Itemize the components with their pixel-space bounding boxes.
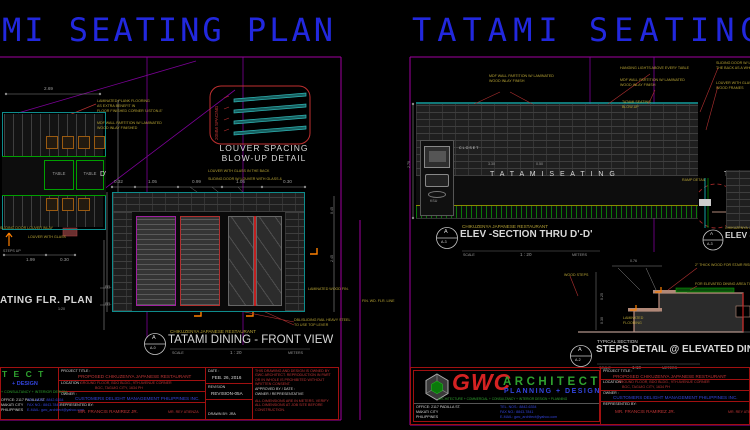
elev-annotation-blowup: BLOW-UP (622, 105, 639, 109)
steps-annotation-wood: 2" THICK WOOD FOR STAIR RISE & TREAD (695, 263, 750, 267)
plan-annotation-wall: MDF WALL PARTITION W/ LAMINATED (97, 121, 162, 125)
front-view-title: TATAMI DINING - FRONT VIEW (168, 334, 333, 347)
corner-detail-wall (726, 170, 750, 228)
equipment-screen (429, 151, 446, 162)
corner-title: ELEV -SECTION (725, 231, 750, 241)
represented-by-value-2: MR. REY ATIENZA (728, 410, 750, 414)
louver-detail-title: BLOW-UP DETAIL (212, 154, 316, 164)
front-glass-panel-1 (228, 216, 254, 306)
front-annotation-rail: TO USE TOP LEVER (294, 323, 328, 327)
sheet-title-right: TATAMI SEATING (412, 12, 750, 49)
logo-divider (414, 403, 599, 404)
owner-value: CUSTOMERS DELIGHT MANAGEMENT PHILIPPINES… (75, 396, 200, 401)
corner-annotation: RAMP DETAIL (682, 178, 706, 182)
logo-address: MAKATI CITY (1, 403, 23, 407)
table-label: TABLE (45, 172, 73, 177)
logo-tagline-tail: + DESIGN (12, 381, 38, 387)
front-wall-right (285, 212, 304, 311)
titleblock-row-line (205, 383, 252, 384)
ksu-label: KSU (430, 199, 437, 203)
steps-title: STEPS DETAIL @ ELEVATED DINING AR (596, 344, 750, 356)
scale-label: SCALE (172, 351, 184, 355)
location-value: GROUND FLOOR, BDO BLDG., 9TH AVENUE CORN… (618, 380, 710, 384)
viewport-marker-number: A-3 (707, 242, 713, 246)
front-wall-left (113, 212, 132, 311)
elev-title: ELEV -SECTION THRU D'-D' (460, 229, 593, 241)
front-dim: 0.99 (192, 179, 201, 184)
logo-services: ARCHITECTURE + COMMERCIAL + CONSULTANCY … (438, 398, 567, 402)
front-annotation-rail: DBL/SLIDING RAIL HEAVY STEEL (294, 318, 350, 322)
front-dim: 1.05 (236, 179, 245, 184)
titleblock-row-line (58, 391, 205, 392)
plan-scale: 1:20 (58, 307, 65, 311)
steps-annotation-riser: WOOD STEPS (564, 273, 588, 277)
logo-address: MAKATI CITY (416, 410, 438, 414)
represented-by-value-2: MR. REY ATIENZA (168, 410, 199, 414)
viewport-marker-letter: A (578, 347, 582, 353)
plan-view-title: ATING FLR. PLAN (0, 295, 93, 307)
titleblock-divider (205, 367, 206, 420)
front-panel-divider (254, 216, 256, 306)
elev-annotation-lights: HANGING LIGHTS ABOVE EVERY TABLE (620, 66, 689, 70)
logo-address: PHILIPPINES (416, 415, 438, 419)
plan-table-1: TABLE (44, 160, 74, 190)
scale-label: SCALE (463, 253, 475, 257)
elev-annotation-slide: THE BACK AS A WHOLE (716, 66, 750, 70)
elev-dim: 0.50 (536, 162, 543, 166)
steps-annotation-laminate: LAMINATED (623, 316, 643, 320)
front-glass-panel-2 (256, 216, 282, 306)
date-value: FEB. 26, 2016 (212, 375, 241, 380)
cad-workspace: MI SEATING PLAN TATAMI SEATING TABLE TAB… (0, 0, 750, 430)
location-value: BGC, TAGUIG CITY, 1634 PH (95, 386, 143, 390)
front-annotation-laminate: LAMINATED WOOD FIN. (308, 287, 349, 291)
location-label: LOCATION : (61, 381, 81, 385)
front-wall-top (113, 193, 304, 212)
elev-annotation-wall1: WOOD INLAY FINISH (489, 79, 524, 83)
logo-address: PHILIPPINES (1, 408, 23, 412)
elev-annotation-blowup: TATAMI SEATING (622, 100, 651, 104)
front-door-panel-2 (180, 216, 220, 306)
louver-spacing-label: 20MM SPACING (214, 106, 219, 140)
elev-equipment-oval (428, 191, 446, 198)
ffl-label: FFL (105, 285, 111, 289)
viewport-marker-letter: A (710, 231, 713, 236)
logo-contact: TEL. NOS.: 8842-6354 (500, 405, 537, 409)
front-vdim: 2.45 (330, 255, 334, 262)
titleblock-row-line (600, 390, 750, 391)
plan-cushion (78, 198, 90, 211)
titleblock-notes-2: ALL DIMENSIONS ARE IN METERS. VERIFY ALL… (255, 399, 335, 412)
steps-dim: 0.25 (600, 293, 604, 300)
steps-annotation-top: FOR ELEVATED DINING AREA TOP (695, 282, 750, 286)
section-marker-label: D' (100, 171, 106, 179)
front-door-panel-1 (136, 216, 176, 306)
closet-label: CLOSET (459, 146, 479, 150)
scale-value: 1 : 20 (230, 350, 242, 355)
elev-annotation-wall1: MDF WALL PARTITION W/ LAMINATED (489, 74, 554, 78)
front-dim: 0.32 (114, 179, 123, 184)
revision-label: REVISION (208, 385, 225, 389)
plan-cushion (46, 198, 58, 211)
titleblock-notes: THIS DRAWING AND DESIGN IS OWNED BY GWC … (255, 369, 335, 387)
owner-value: CUSTOMERS DELIGHT MANAGEMENT PHILIPPINES… (613, 395, 738, 400)
elev-dim: 3.30 (488, 162, 495, 166)
elev-equipment-box (424, 146, 450, 168)
plan-dim-top: 2.69 (44, 86, 53, 91)
steps-up-arrow-icon (6, 233, 12, 246)
titleblock-divider (252, 367, 253, 420)
plan-dim-bottom-2: 0.30 (60, 257, 69, 262)
elev-vdim: 2.70 (407, 161, 411, 168)
represented-by-value: MR. FRANCIS RAMIREZ JR. (78, 409, 138, 414)
elev-annotation-glass: LOUVER WITH GLASS & (716, 81, 750, 85)
plan-cushion (78, 136, 90, 149)
steps-dim: 0.76 (630, 259, 637, 263)
elev-annotation-wall2: MDF WALL PARTITION W/ LAMINATED (620, 78, 685, 82)
logo-contact: TEL. NOS.: 8842-6354 (27, 398, 64, 402)
louver-blowup-box (210, 86, 310, 144)
plan-dim-bottom-1: 1.99 (26, 257, 35, 262)
viewport-marker-number: A-3 (441, 240, 447, 244)
tatami-seating-label: T A T A M I S E A T I N G (490, 171, 617, 179)
elev-annotation-slide: SLIDING DOOR W/ LOUVER IN (716, 61, 750, 65)
front-dim: 1.05 (148, 179, 157, 184)
steps-dim: 0.30 (600, 317, 604, 324)
elev-wall (416, 104, 698, 176)
scale-unit: METERS (288, 351, 303, 355)
location-value: GROUND FLOOR, BDO BLDG., 9TH AVENUE CORN… (80, 381, 172, 385)
date-label: DATE : (208, 369, 219, 373)
logo-architect-tail: T E C T (2, 370, 45, 380)
logo-tagline: PLANNING + DESIGN (504, 388, 601, 396)
viewport-marker-number: A-2 (575, 358, 581, 362)
logo-contact: E-MAIL: gwc_architect@yahoo.com (500, 415, 557, 419)
scale-unit: METERS (572, 253, 587, 257)
plan-cushion (94, 136, 105, 149)
steps-up-label: STEPS UP (3, 249, 21, 253)
plan-annotation-flooring: LAMINATED PLANK FLOORING (97, 99, 150, 103)
viewport-marker-letter: A (444, 229, 448, 235)
logo-contact: FAX NO.: 8843-7841 (27, 403, 60, 407)
titleblock-row-line (205, 399, 252, 400)
project-title-label: PROJECT TITLE : (603, 369, 632, 373)
viewport-marker-number: A-0 (150, 346, 156, 350)
elev-annotation-wall2: WOOD INLAY FINISH (620, 83, 655, 87)
project-title-value: PROPOSED CHIKUZENYA JAPANESE RESTAURANT (78, 374, 191, 379)
revision-value: REVISION-05A (211, 391, 243, 396)
plan-annotation-louver: LOUVER WITH GLASS (28, 235, 66, 239)
front-vdim: 0.45 (330, 207, 334, 214)
logo-contact: FAX NO.: 8843-7841 (500, 410, 533, 414)
location-value: BGC, TAGUIG CITY, 1634 PH (622, 385, 670, 389)
plan-cushion (62, 136, 74, 149)
represented-by-label: REPRESENTED BY: (603, 402, 637, 406)
louver-note: LOUVER WITH GLASS IN THE BACK (208, 169, 269, 173)
plan-annotation-wall: WOOD INLAY FINISHED (97, 126, 137, 130)
represented-by-value: MR. FRANCIS RAMIREZ JR. (615, 409, 675, 414)
drawn-by: DRAWN BY: JRA (208, 412, 236, 416)
steps-annotation-laminate: FLOORING (623, 321, 642, 325)
elev-tatami-platform (416, 205, 698, 218)
front-annotation-finish: FIN. WD. FLR. LINE (362, 299, 395, 303)
project-title-value: PROPOSED CHIKUZENYA JAPANESE RESTAURANT (613, 374, 726, 379)
approval-line: APPROVED BY / DATE : (255, 387, 295, 391)
plan-cushion (46, 136, 58, 149)
represented-by-label: REPRESENTED BY: (60, 403, 94, 407)
elev-annotation-glass: WOOD FRAMES (716, 86, 744, 90)
logo-services-tail: + CONSULTANCY + INTERIOR DESIGN (1, 390, 67, 394)
plan-annotation-flooring: AS EXTRA BENEFIT IN (97, 104, 135, 108)
viewport-marker-letter: A (152, 335, 156, 341)
elev-equipment-drawer (425, 174, 449, 187)
ffl-label: FFL (105, 302, 111, 306)
plan-annotation-door: SLIDING DOOR LOUVER INLAY (0, 226, 53, 230)
sheet-title-left: MI SEATING PLAN (2, 12, 336, 49)
front-dim: 0.30 (283, 179, 292, 184)
plan-cushion (62, 198, 74, 211)
elev-seating-zone (416, 176, 698, 205)
plan-annotation-flooring: FLOOR FINISHED CORNER 'LISTON-E' (97, 109, 163, 113)
scale-value: 1 : 20 (520, 252, 532, 257)
project-title-label: PROJECT TITLE : (61, 369, 90, 373)
approval-line: OWNER / REPRESENTATIVE (255, 392, 304, 396)
logo-contact: E-MAIL: gwc_architect@yahoo.com (27, 408, 84, 412)
logo-address: OFFICE: 2117 PADILLA ST. (416, 405, 460, 409)
